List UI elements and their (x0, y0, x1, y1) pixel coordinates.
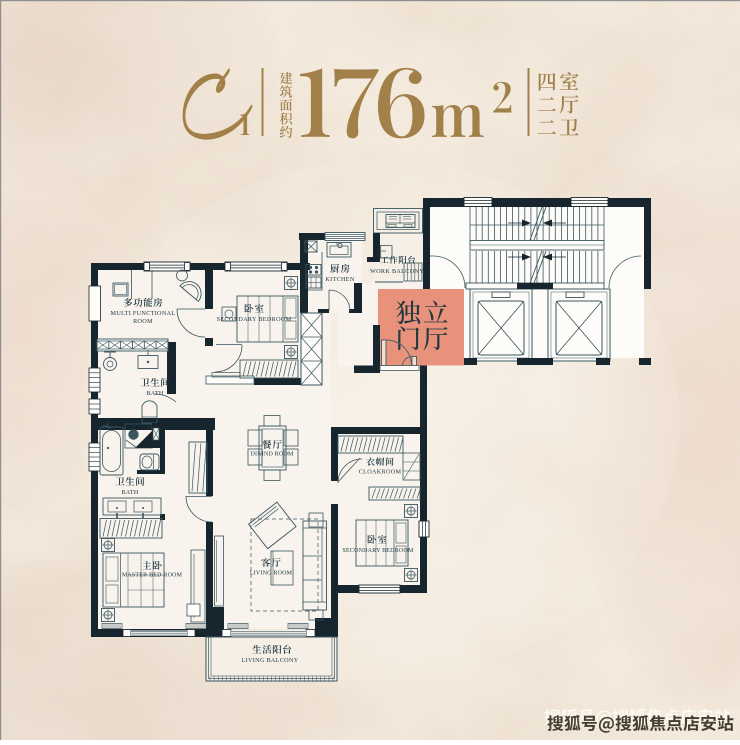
svg-text:ROOM: ROOM (133, 318, 153, 325)
svg-text:WORK BALCONY: WORK BALCONY (370, 268, 424, 275)
svg-text:DININD ROOM: DININD ROOM (250, 452, 293, 458)
svg-text:SECONDARY BEDROOM: SECONDARY BEDROOM (342, 548, 413, 554)
svg-text:BATH: BATH (121, 489, 139, 496)
svg-text:LIVING ROOM: LIVING ROOM (250, 571, 293, 577)
svg-text:MASTER BED ROOM: MASTER BED ROOM (122, 573, 183, 579)
svg-text:SECONDARY BEDROOM: SECONDARY BEDROOM (217, 316, 292, 323)
svg-text:KITCHEN: KITCHEN (325, 276, 354, 283)
svg-text:CLOAKROOM: CLOAKROOM (359, 469, 402, 476)
svg-text:MULTI FUNCTIONAL: MULTI FUNCTIONAL (111, 310, 176, 317)
svg-text:LIVING BALCONY: LIVING BALCONY (242, 657, 299, 664)
svg-text:BATH: BATH (146, 390, 164, 397)
